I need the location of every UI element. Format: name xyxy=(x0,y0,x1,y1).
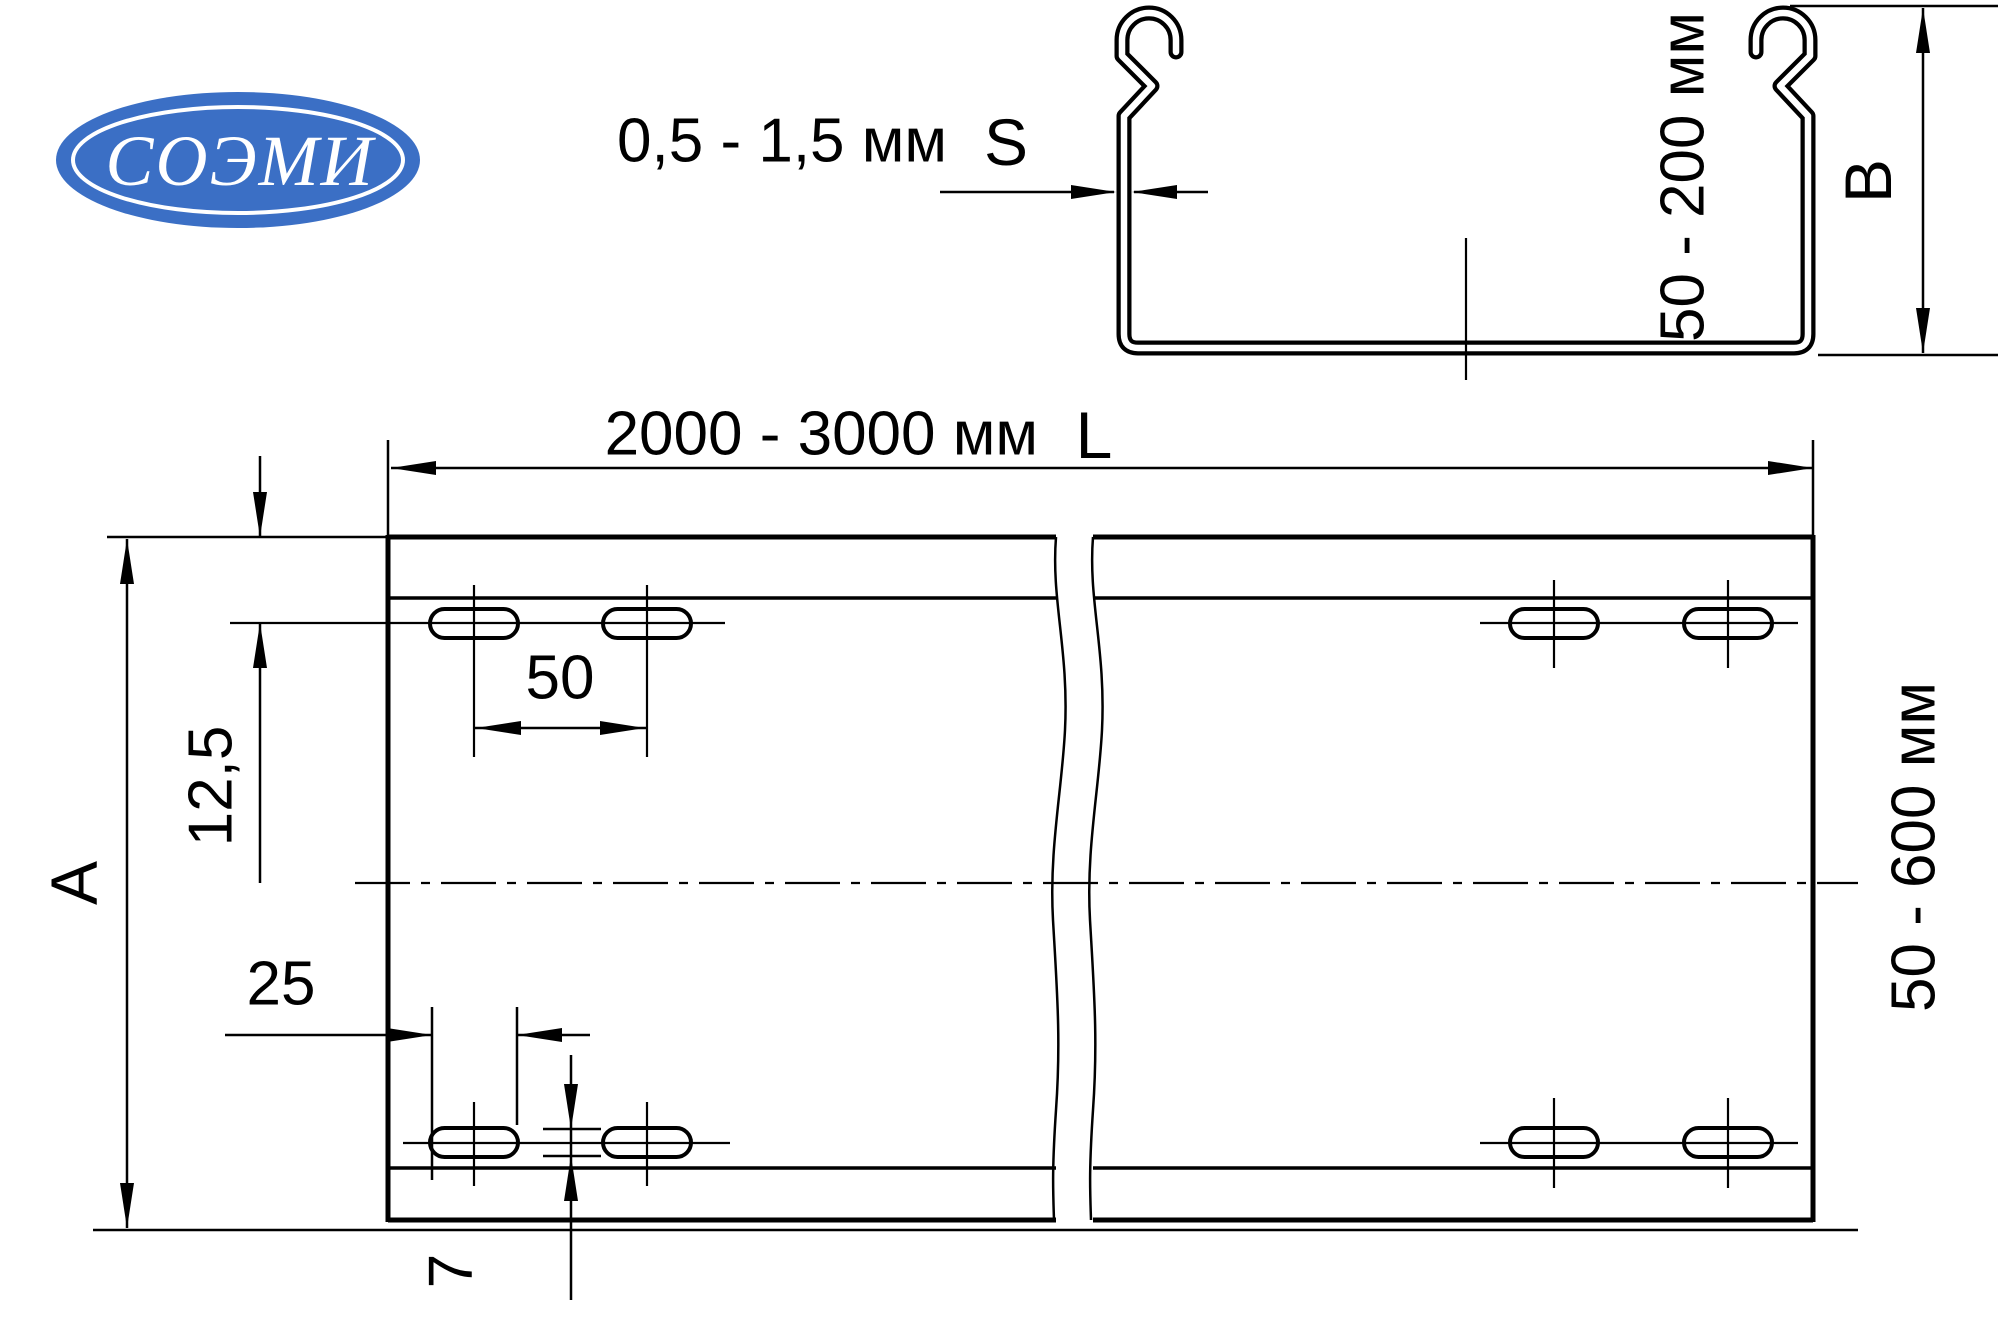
width-value-label: 50 - 600 мм xyxy=(1880,682,1949,1012)
logo-text: СОЭМИ xyxy=(105,121,376,201)
edge-offset-arrow-up xyxy=(253,623,267,668)
thickness-arrow-left xyxy=(1071,185,1116,199)
technical-drawing-canvas: СОЭМИ 0,5 - 1,5 мм S 50 - 200 мм B xyxy=(0,0,2000,1333)
hole-spacing-label: 50 xyxy=(526,644,595,713)
length-dimension: 2000 - 3000 мм L xyxy=(388,398,1813,537)
thickness-value-label: 0,5 - 1,5 мм xyxy=(617,107,947,176)
plan-view: 2000 - 3000 мм L A 50 - 600 мм 12,5 50 xyxy=(37,398,1949,1300)
edge-offset-arrow-down xyxy=(253,492,267,537)
height-dimension: 50 - 200 мм B xyxy=(1649,6,1998,355)
hole-length-dimension: 25 xyxy=(225,950,590,1180)
length-arrow-right xyxy=(1768,461,1813,475)
drawing-page: СОЭМИ 0,5 - 1,5 мм S 50 - 200 мм B xyxy=(0,0,2000,1333)
hole-width-arrow-up xyxy=(564,1156,578,1201)
edge-offset-dimension: 12,5 xyxy=(177,456,267,883)
length-value-label: 2000 - 3000 мм xyxy=(605,400,1038,469)
length-arrow-left xyxy=(391,461,436,475)
break-line-right xyxy=(1089,537,1102,1220)
logo: СОЭМИ xyxy=(56,92,420,228)
width-symbol-label: A xyxy=(37,861,111,905)
thickness-symbol-label: S xyxy=(984,105,1028,179)
section-view: 0,5 - 1,5 мм S 50 - 200 мм B xyxy=(617,6,1998,380)
hole-length-label: 25 xyxy=(247,950,316,1019)
length-symbol-label: L xyxy=(1076,398,1113,472)
width-arrow-bottom xyxy=(120,1183,134,1228)
break-line-left xyxy=(1052,537,1065,1220)
height-arrow-top xyxy=(1916,8,1930,53)
hole-length-arrow-left xyxy=(387,1028,432,1042)
height-symbol-label: B xyxy=(1831,159,1905,203)
thickness-arrow-right xyxy=(1132,185,1177,199)
hole-width-arrow-down xyxy=(564,1084,578,1129)
hole-width-label: 7 xyxy=(417,1254,486,1288)
hole-width-dimension: 7 xyxy=(417,1055,601,1300)
hole-length-arrow-right xyxy=(517,1028,562,1042)
hole-spacing-dimension: 50 xyxy=(474,644,647,735)
width-arrow-top xyxy=(120,539,134,584)
height-value-label: 50 - 200 мм xyxy=(1649,12,1718,342)
hole-spacing-arrow-left xyxy=(476,721,521,735)
edge-offset-label: 12,5 xyxy=(177,726,246,847)
height-arrow-bottom xyxy=(1916,308,1930,353)
hole-spacing-arrow-right xyxy=(600,721,645,735)
